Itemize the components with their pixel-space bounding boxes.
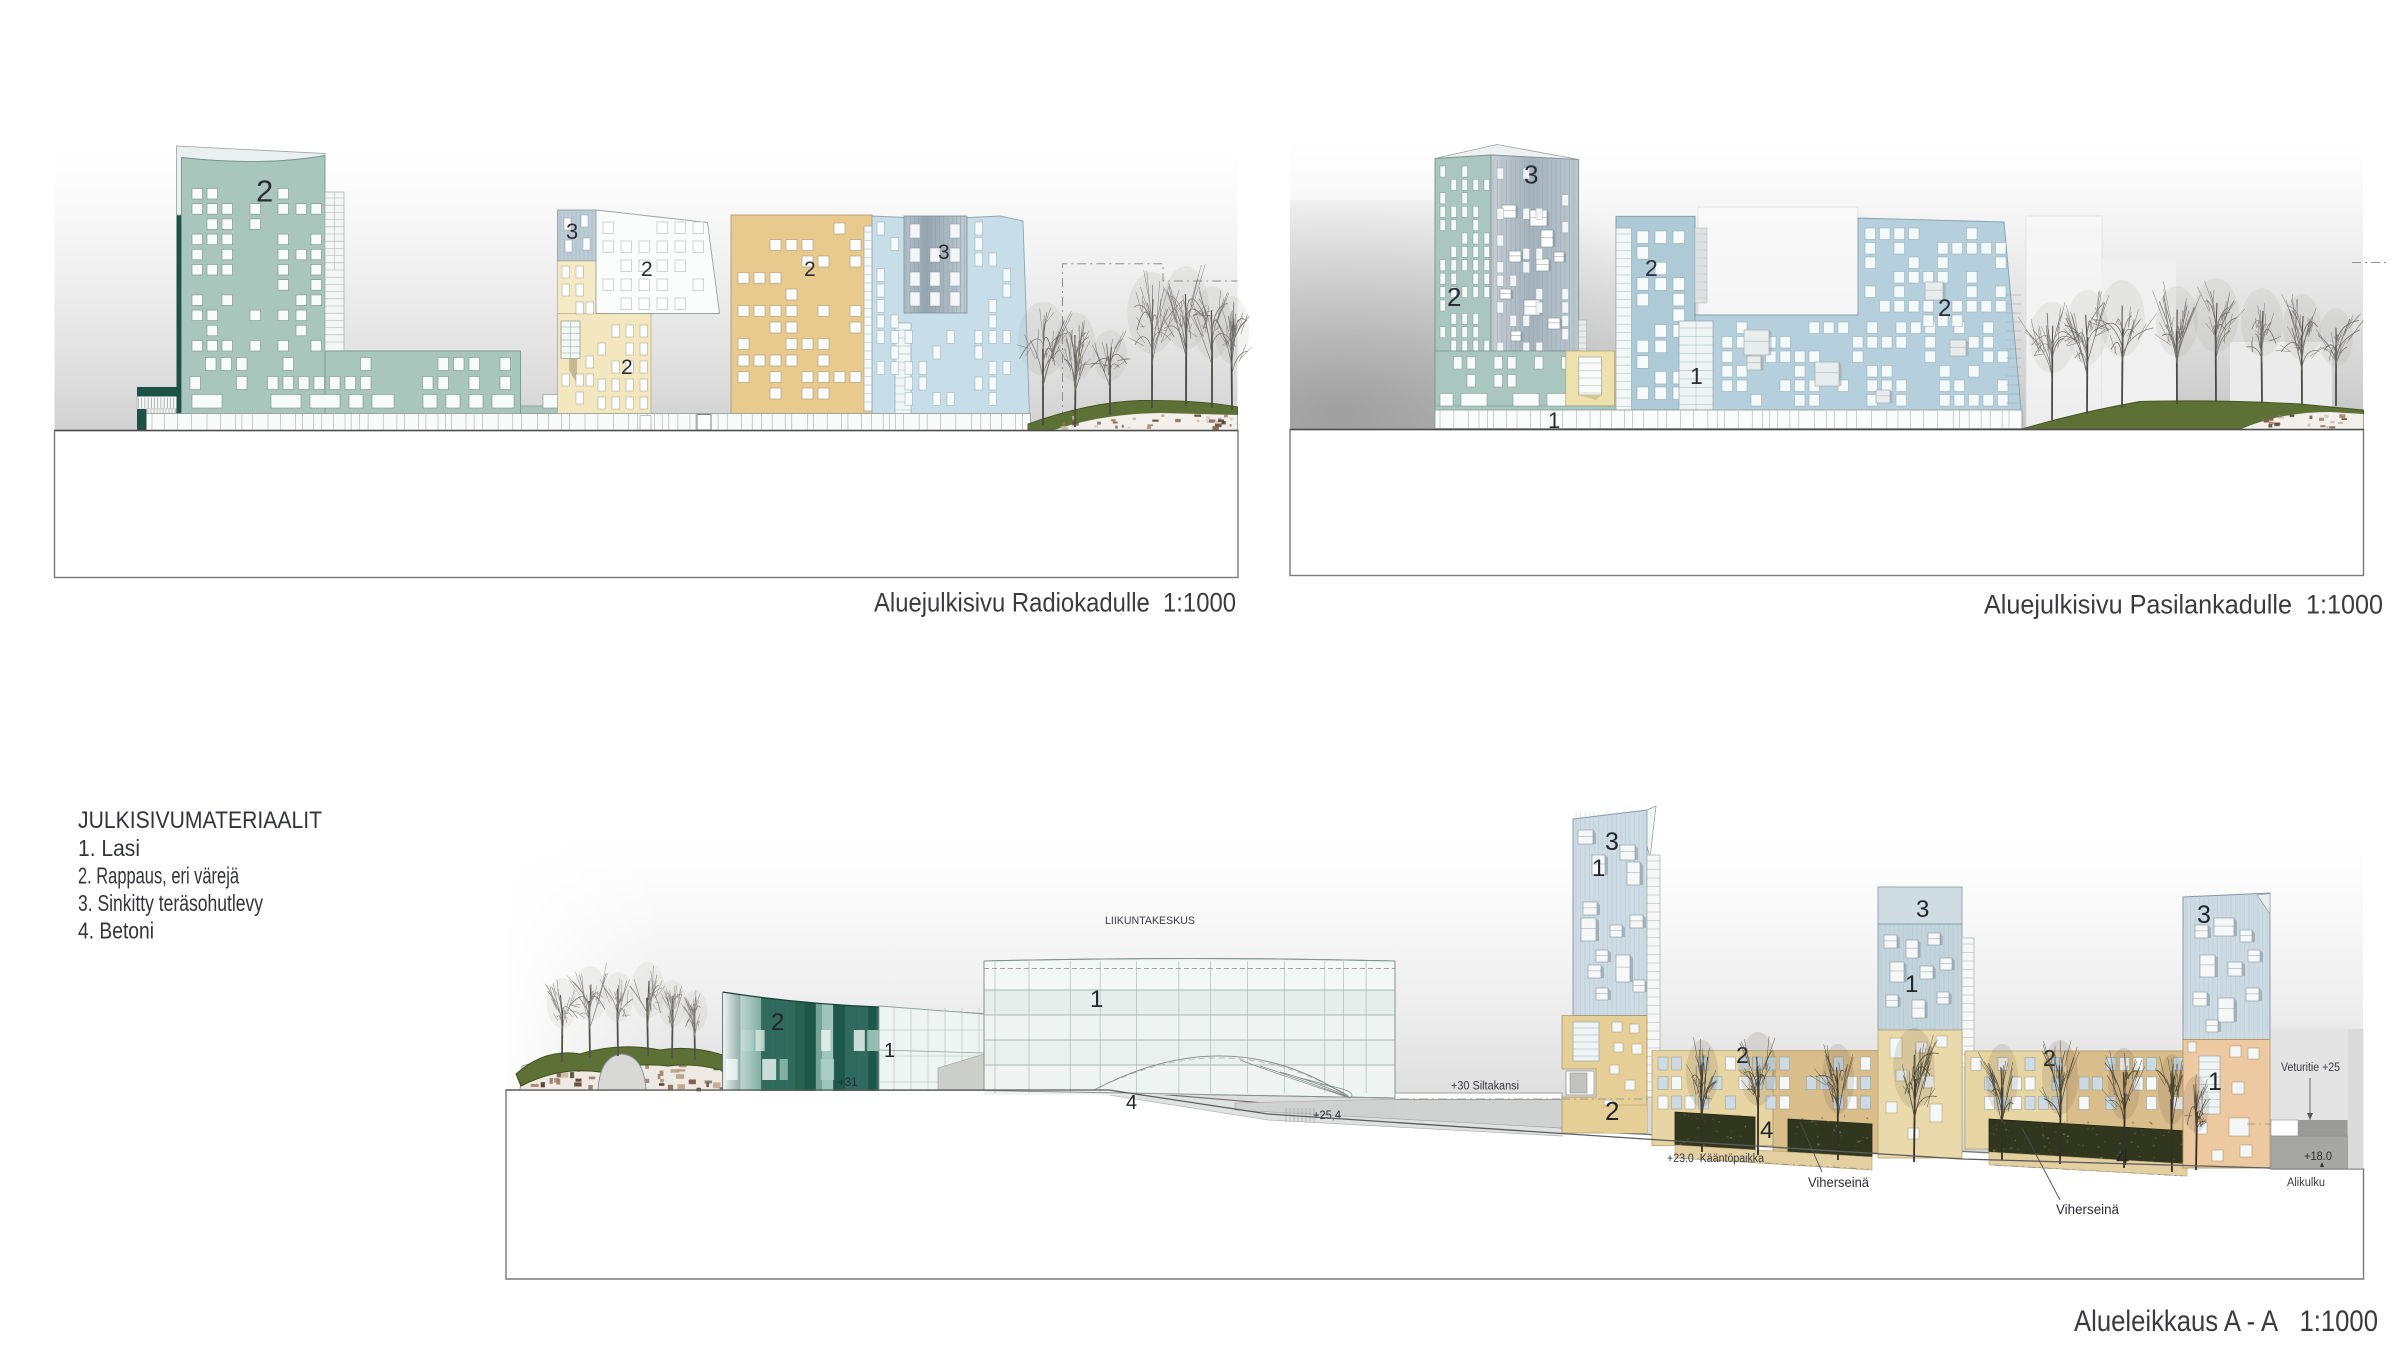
- svg-text:1: 1: [1690, 363, 1703, 389]
- svg-text:2: 2: [1938, 295, 1951, 322]
- svg-text:1. Lasi: 1. Lasi: [78, 835, 140, 861]
- svg-text:2. Rappaus, eri värejä: 2. Rappaus, eri värejä: [78, 863, 239, 889]
- svg-text:2: 2: [1605, 1096, 1619, 1126]
- svg-text:Veturitie +25: Veturitie +25: [2281, 1062, 2340, 1074]
- svg-text:1: 1: [884, 1040, 895, 1062]
- svg-text:1: 1: [2208, 1068, 2222, 1096]
- svg-text:+30 Siltakansi: +30 Siltakansi: [1451, 1081, 1519, 1093]
- svg-text:4. Betoni: 4. Betoni: [78, 918, 154, 944]
- svg-text:2: 2: [1645, 255, 1658, 281]
- svg-text:+23.0 Kääntöpaikka: +23.0 Kääntöpaikka: [1667, 1153, 1765, 1165]
- svg-text:4: 4: [1760, 1117, 1773, 1144]
- svg-text:3: 3: [566, 219, 578, 244]
- svg-text:3: 3: [1916, 896, 1929, 923]
- svg-text:3: 3: [2197, 901, 2211, 929]
- svg-text:3: 3: [1605, 828, 1619, 856]
- svg-text:LIIKUNTAKESKUS: LIIKUNTAKESKUS: [1105, 915, 1195, 927]
- svg-text:JULKISIVUMATERIAALIT: JULKISIVUMATERIAALIT: [78, 807, 322, 834]
- svg-text:1: 1: [1090, 986, 1103, 1013]
- svg-text:1: 1: [1905, 971, 1918, 998]
- svg-text:+18.0: +18.0: [2304, 1151, 2332, 1163]
- svg-text:Aluejulkisivu Pasilankadulle: Aluejulkisivu Pasilankadulle 1:1000: [1984, 590, 2383, 620]
- svg-text:Viherseinä: Viherseinä: [2056, 1202, 2119, 1217]
- svg-text:3: 3: [1524, 160, 1538, 190]
- svg-text:Viherseinä: Viherseinä: [1808, 1175, 1869, 1190]
- svg-text:4: 4: [2116, 1144, 2129, 1171]
- svg-text:1: 1: [1592, 855, 1605, 882]
- svg-text:2: 2: [256, 174, 273, 209]
- svg-text:Aluejulkisivu Radiokadulle 1:: Aluejulkisivu Radiokadulle 1:1000: [874, 588, 1236, 618]
- svg-text:2: 2: [641, 258, 653, 281]
- svg-text:2: 2: [1447, 282, 1461, 312]
- svg-text:3. Sinkitty teräsohutlevy: 3. Sinkitty teräsohutlevy: [78, 890, 263, 916]
- svg-text:+25,4: +25,4: [1313, 1110, 1342, 1122]
- svg-text:+31: +31: [838, 1077, 858, 1089]
- svg-text:2: 2: [621, 356, 633, 379]
- svg-text:3: 3: [938, 241, 950, 264]
- svg-text:Alueleikkaus A - A 1:1000: Alueleikkaus A - A 1:1000: [2074, 1305, 2378, 1338]
- svg-text:2: 2: [804, 258, 816, 281]
- svg-text:Alikulku: Alikulku: [2287, 1177, 2325, 1189]
- svg-text:2: 2: [771, 1009, 784, 1036]
- svg-text:4: 4: [1126, 1092, 1137, 1114]
